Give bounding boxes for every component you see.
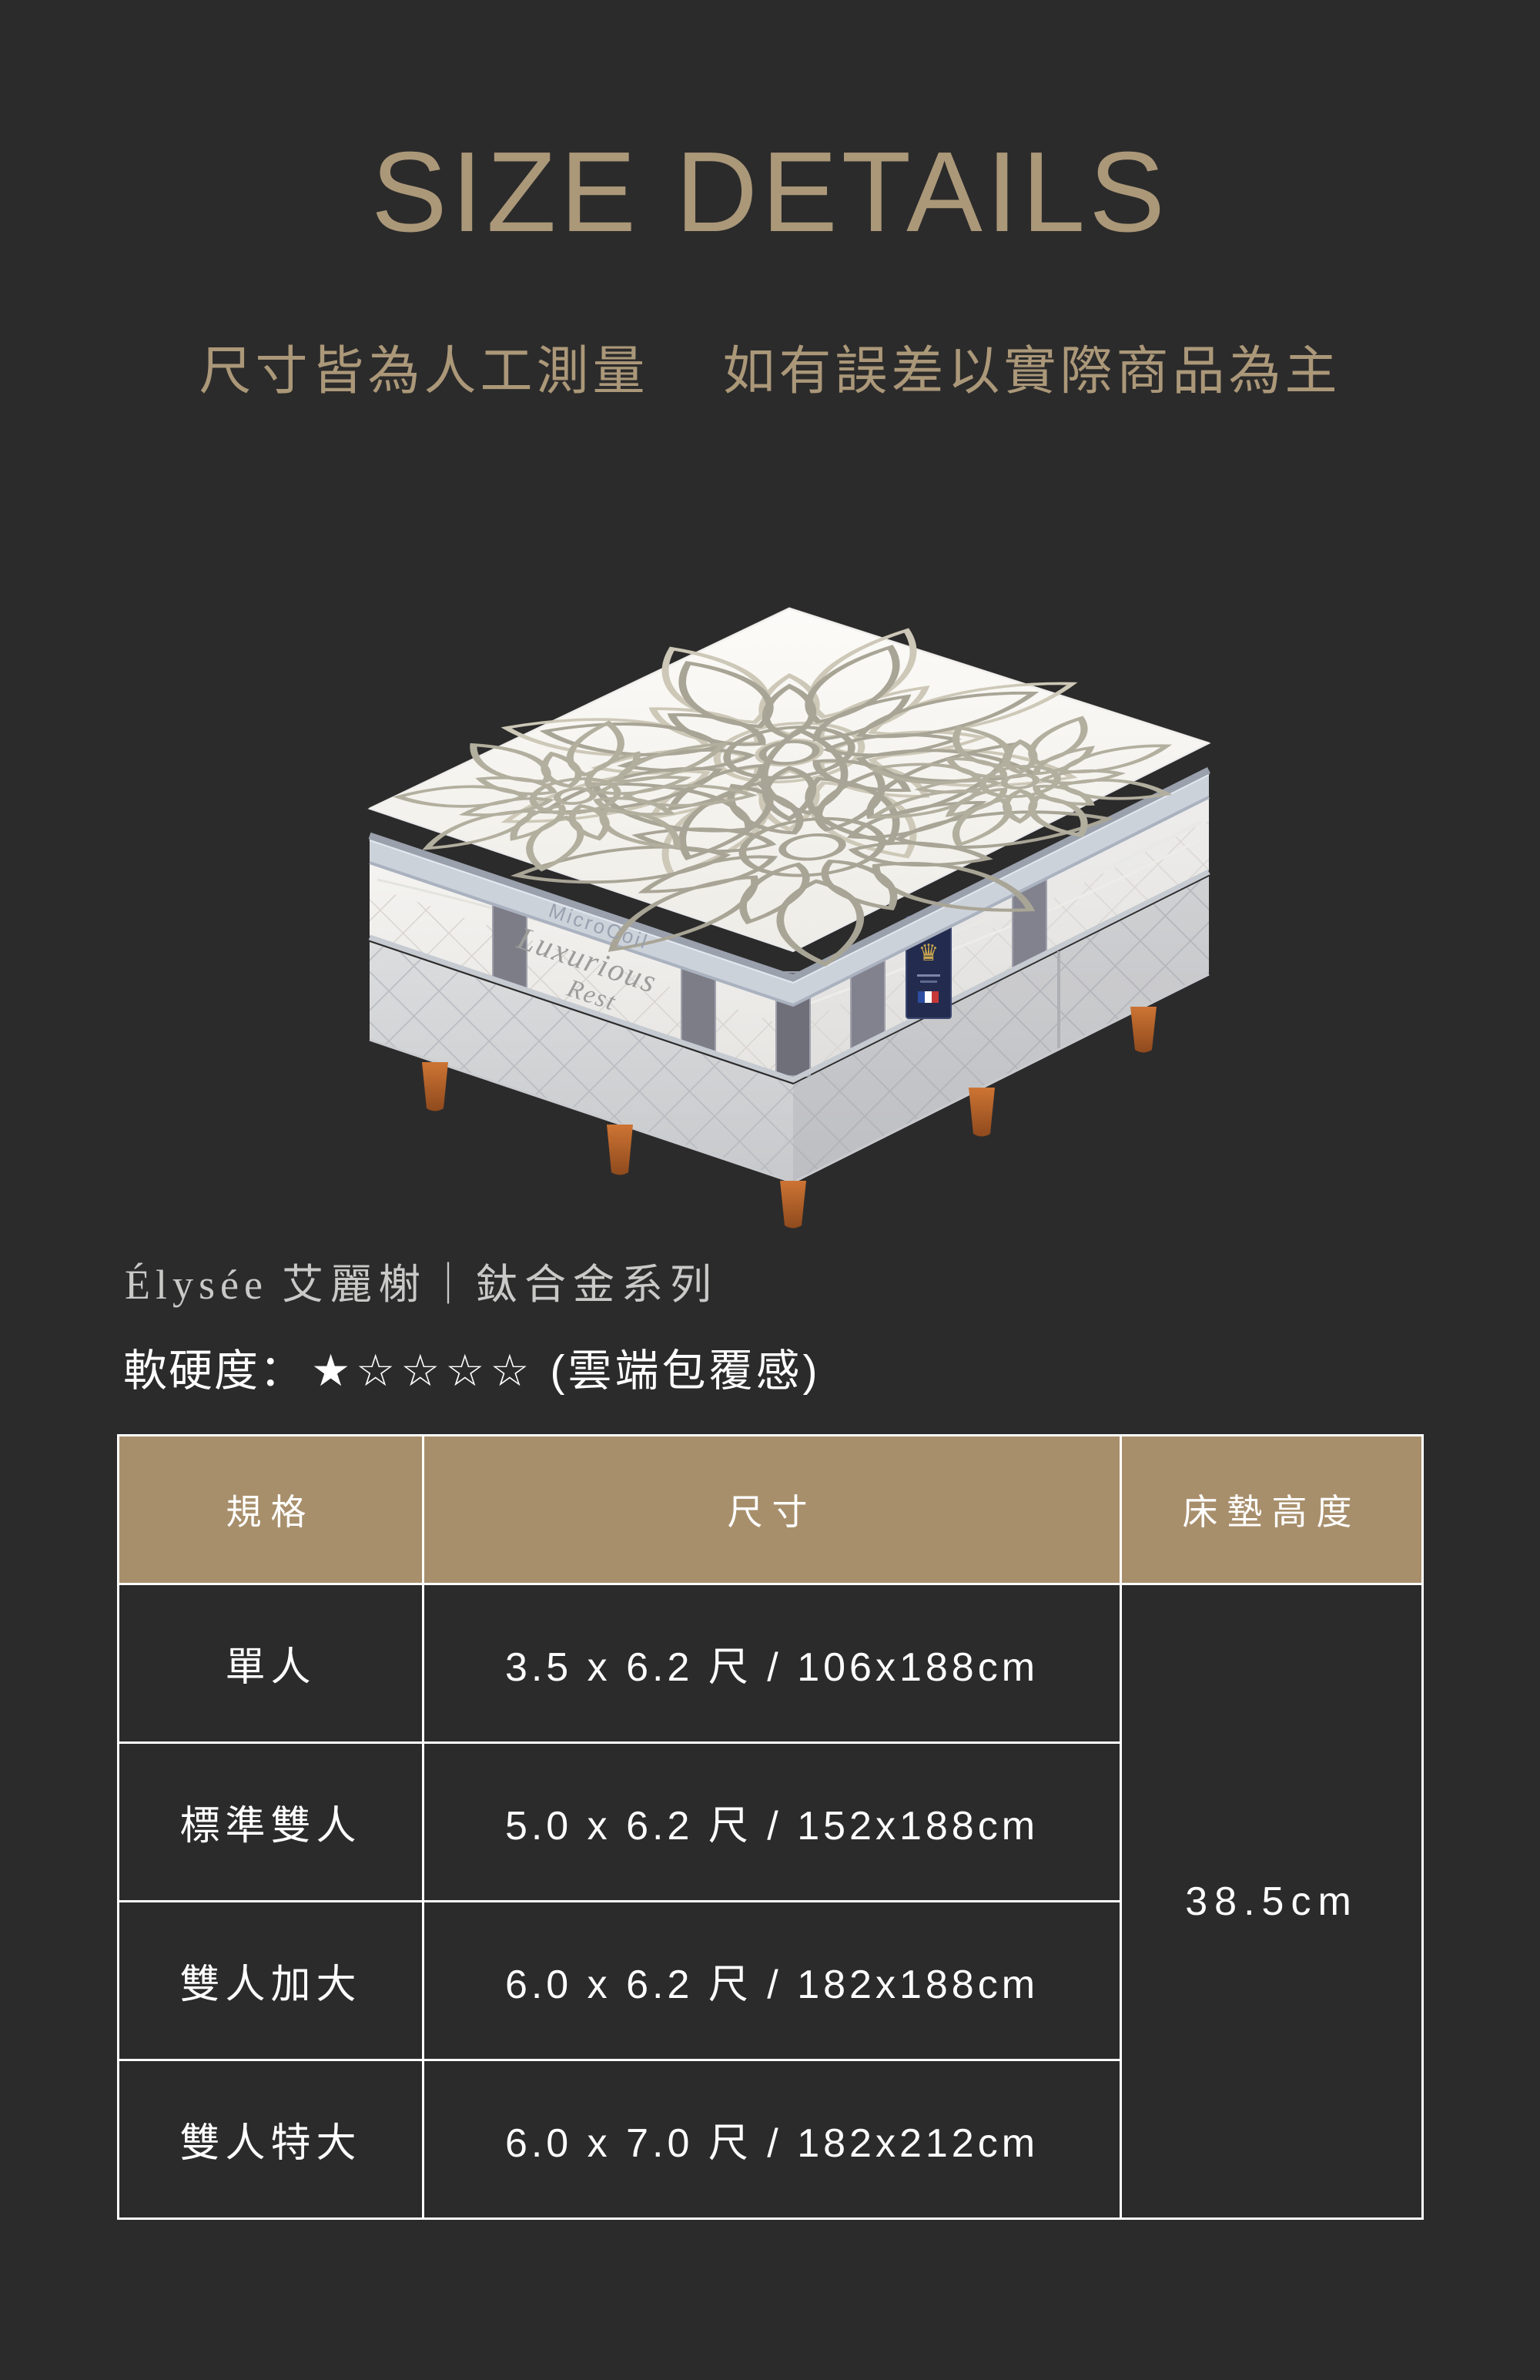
column-header-size: 尺寸 xyxy=(423,1436,1121,1584)
mattress-photo: ♛ xyxy=(289,589,1251,1244)
spec-cell: 雙人加大 xyxy=(119,1902,423,2060)
spec-cell: 標準雙人 xyxy=(119,1743,423,1902)
page-title: SIZE DETAILS xyxy=(0,136,1540,250)
size-cell: 3.5 x 6.2 尺 / 106x188cm xyxy=(423,1584,1121,1743)
mattress-height-cell: 38.5cm xyxy=(1121,1584,1423,2219)
spec-cell: 雙人特大 xyxy=(119,2060,423,2219)
product-name: Élysée艾麗榭｜鈦合金系列 xyxy=(125,1252,718,1317)
size-cell: 5.0 x 6.2 尺 / 152x188cm xyxy=(423,1743,1121,1902)
column-header-spec: 規格 xyxy=(119,1436,423,1584)
disclaimer-part1: 尺寸皆為人工測量 xyxy=(199,342,648,401)
size-table-header-row: 規格 尺寸 床墊高度 xyxy=(119,1436,1423,1584)
measurement-disclaimer: 尺寸皆為人工測量如有誤差以實際商品為主 xyxy=(0,339,1540,404)
product-name-en: Élysée xyxy=(125,1262,268,1308)
size-cell: 6.0 x 6.2 尺 / 182x188cm xyxy=(423,1902,1121,2060)
firmness-label: 軟硬度： xyxy=(123,1346,305,1396)
spec-cell: 單人 xyxy=(119,1584,423,1743)
table-row: 單人 3.5 x 6.2 尺 / 106x188cm 38.5cm xyxy=(119,1584,1423,1743)
product-name-zh: 艾麗榭｜鈦合金系列 xyxy=(282,1262,718,1308)
mattress-illustration: ♛ xyxy=(289,589,1251,1244)
disclaimer-part2: 如有誤差以實際商品為主 xyxy=(723,342,1341,401)
column-header-height: 床墊高度 xyxy=(1121,1436,1423,1584)
firmness-note: (雲端包覆感) xyxy=(551,1346,821,1396)
size-table: 規格 尺寸 床墊高度 單人 3.5 x 6.2 尺 / 106x188cm 38… xyxy=(117,1434,1424,2220)
size-cell: 6.0 x 7.0 尺 / 182x212cm xyxy=(423,2060,1121,2219)
tag-crown-icon: ♛ xyxy=(919,940,939,966)
firmness-rating: 軟硬度：★☆☆☆☆(雲端包覆感) xyxy=(123,1339,820,1403)
size-details-page: SIZE DETAILS 尺寸皆為人工測量如有誤差以實際商品為主 xyxy=(0,0,1540,2380)
firmness-stars: ★☆☆☆☆ xyxy=(311,1346,535,1396)
